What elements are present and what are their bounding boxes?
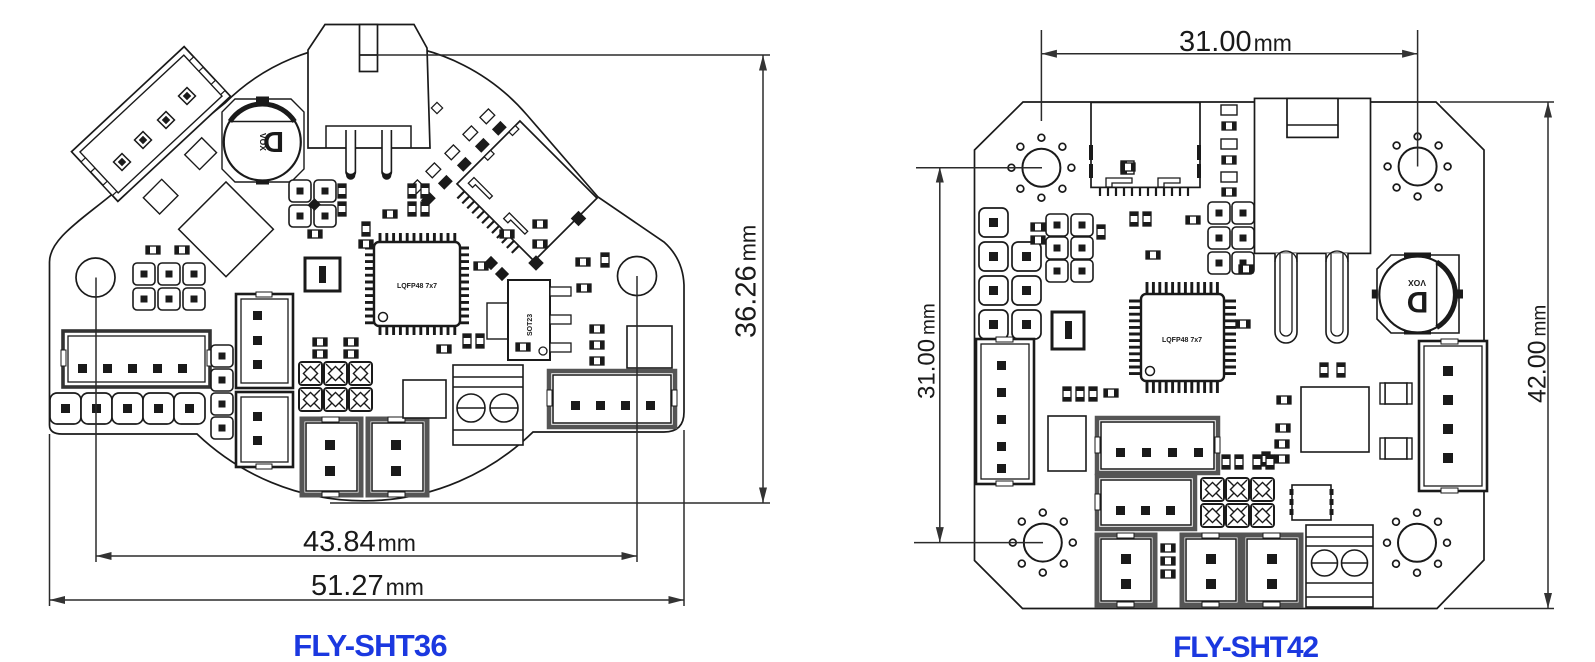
svg-text:31.00mm: 31.00mm [1179,26,1292,58]
svg-text:51.27mm: 51.27mm [311,570,424,602]
svg-text:31.00mm: 31.00mm [914,303,941,399]
svg-text:VOX: VOX [1408,278,1426,288]
svg-text:VOX: VOX [258,133,268,151]
svg-text:42.00mm: 42.00mm [1524,305,1552,403]
svg-text:FLY-SHT36: FLY-SHT36 [293,628,447,662]
svg-text:LQFP48 7x7: LQFP48 7x7 [1162,337,1202,344]
svg-text:LQFP48 7x7: LQFP48 7x7 [397,283,437,290]
svg-text:43.84mm: 43.84mm [303,526,416,558]
svg-text:SOT23: SOT23 [527,314,534,336]
svg-text:36.26mm: 36.26mm [731,225,763,338]
svg-text:D: D [1407,285,1429,318]
svg-text:FLY-SHT42: FLY-SHT42 [1173,631,1318,662]
